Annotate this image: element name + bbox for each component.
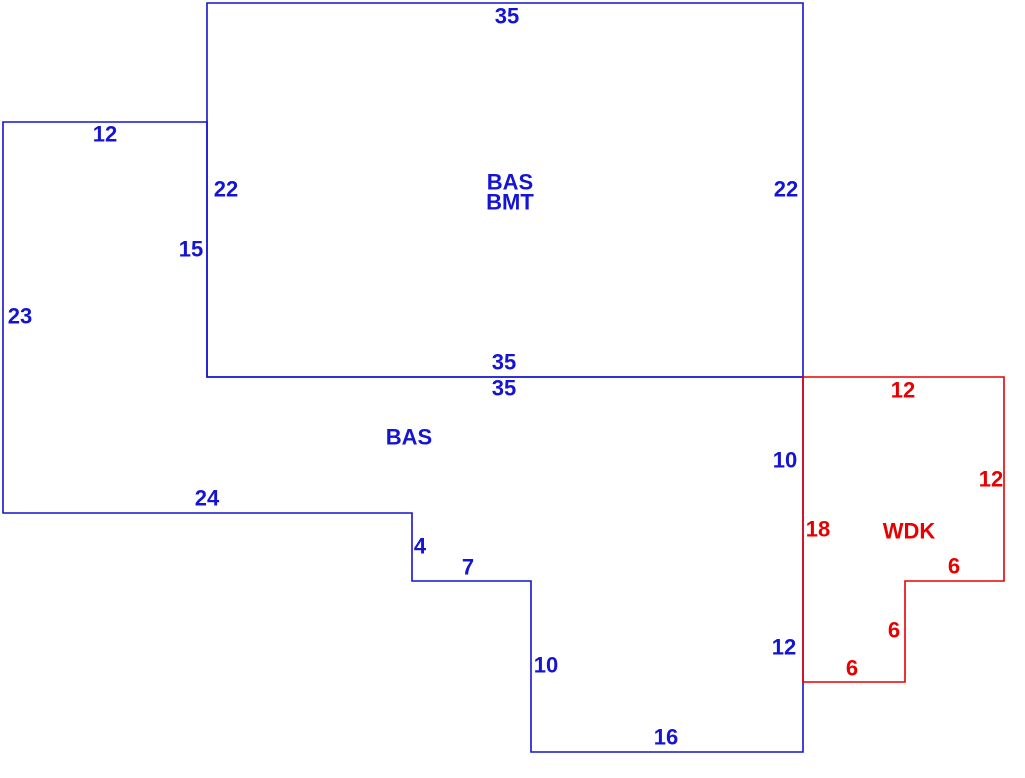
dim-upperleft-12: 12 [93, 122, 117, 147]
dim-step-7: 7 [462, 555, 474, 580]
dim-right-12: 12 [772, 635, 796, 660]
dim-shared-35-above: 35 [492, 350, 516, 375]
dim-shared-35-below: 35 [492, 376, 516, 401]
dim-right-22: 22 [774, 177, 798, 202]
dim-top-35: 35 [495, 4, 519, 29]
floor-plan-sketch: 351222BASBMT2215233535BAS244710121016121… [0, 0, 1025, 778]
dim-bottom-16: 16 [654, 725, 678, 750]
dim-step-4: 4 [414, 534, 427, 559]
dim-wdk-6-mid: 6 [888, 618, 900, 643]
dim-far-left-23: 23 [8, 304, 32, 329]
dim-right-10: 10 [773, 448, 797, 473]
sketch-drawing: 351222BASBMT2215233535BAS244710121016121… [0, 0, 1025, 778]
dim-left-22: 22 [214, 177, 238, 202]
dim-wdk-top-12: 12 [891, 378, 915, 403]
dim-left-15: 15 [179, 237, 203, 262]
dim-lower-10: 10 [534, 653, 558, 678]
dim-wdk-6-bottom: 6 [846, 656, 858, 681]
dim-bottom-24: 24 [195, 486, 220, 511]
area-label-bas-lower: BAS [386, 425, 432, 450]
dim-wdk-6-top: 6 [948, 554, 960, 579]
dim-wdk-left-18: 18 [806, 517, 830, 542]
dim-wdk-right-12: 12 [979, 467, 1003, 492]
area-label-wdk: WDK [883, 519, 936, 544]
area-label-bmt: BMT [486, 190, 534, 215]
